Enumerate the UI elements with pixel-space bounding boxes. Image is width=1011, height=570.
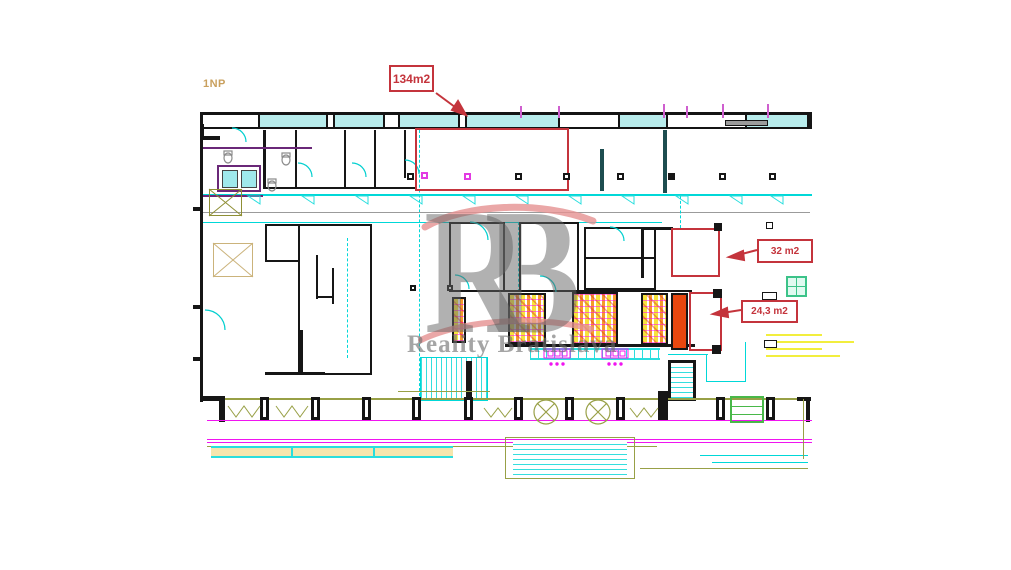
arrowhead-24m2: [713, 308, 728, 317]
annotation-arrows: [0, 0, 1011, 570]
floorplan-canvas: 1NP: [0, 0, 1011, 570]
arrowhead-134m2: [452, 101, 466, 115]
arrowhead-32m2: [729, 251, 744, 260]
